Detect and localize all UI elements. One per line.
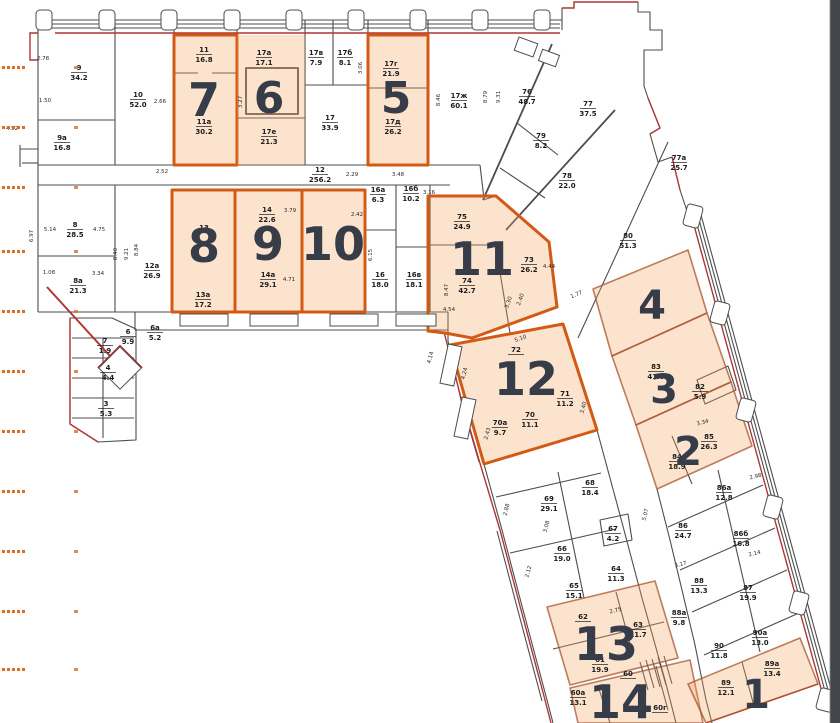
svg-text:24.9: 24.9 (453, 223, 470, 231)
svg-text:86б: 86б (734, 530, 749, 538)
svg-text:17е: 17е (262, 128, 277, 136)
floor-plan-svg: 934.29а16.81052.01116.811а30.217а17.117е… (0, 0, 840, 723)
svg-text:8.46: 8.46 (436, 93, 442, 106)
pilaster-icon (534, 10, 550, 30)
svg-text:79: 79 (536, 132, 546, 140)
svg-text:8.2: 8.2 (535, 142, 548, 150)
unit-number-7[interactable]: 7 (188, 73, 220, 127)
svg-text:17а: 17а (257, 49, 272, 57)
pilaster-icon (286, 10, 302, 30)
svg-text:8.79: 8.79 (483, 90, 489, 103)
svg-text:10: 10 (133, 91, 143, 99)
svg-text:16в: 16в (407, 271, 422, 279)
unit-number-13[interactable]: 13 (574, 617, 638, 671)
svg-text:6а: 6а (150, 324, 160, 332)
svg-text:256.2: 256.2 (309, 176, 331, 184)
svg-text:86а: 86а (717, 484, 732, 492)
svg-text:19.9: 19.9 (739, 594, 756, 602)
svg-text:21.3: 21.3 (69, 287, 86, 295)
svg-text:90: 90 (714, 642, 724, 650)
svg-text:17.1: 17.1 (255, 59, 272, 67)
svg-text:89: 89 (721, 679, 731, 687)
svg-text:14: 14 (262, 206, 272, 214)
svg-text:76: 76 (522, 88, 532, 96)
svg-text:29.1: 29.1 (259, 281, 276, 289)
svg-text:88а: 88а (672, 609, 687, 617)
room-label-60г: 60г (652, 704, 668, 713)
svg-text:12.8: 12.8 (715, 494, 732, 502)
window-recess (180, 314, 228, 326)
unit-number-2[interactable]: 2 (674, 429, 702, 475)
svg-text:5.14: 5.14 (44, 227, 57, 233)
svg-text:6: 6 (126, 328, 131, 336)
svg-text:22.0: 22.0 (558, 182, 575, 190)
svg-text:6.15: 6.15 (368, 248, 374, 261)
floor-plan-page: 934.29а16.81052.01116.811а30.217а17.117е… (0, 0, 840, 723)
svg-text:9.21: 9.21 (124, 248, 130, 260)
pilaster-icon (410, 10, 426, 30)
svg-text:9а: 9а (57, 134, 67, 142)
svg-text:52.0: 52.0 (129, 101, 146, 109)
svg-text:12а: 12а (145, 262, 160, 270)
unit-number-8[interactable]: 8 (188, 219, 220, 273)
pilaster-icon (161, 10, 177, 30)
svg-text:13.1: 13.1 (569, 699, 586, 707)
svg-text:16: 16 (375, 271, 385, 279)
svg-text:4.44: 4.44 (543, 264, 556, 270)
svg-text:3.27: 3.27 (238, 95, 244, 108)
svg-text:15.1: 15.1 (565, 592, 582, 600)
svg-text:9.8: 9.8 (673, 619, 686, 627)
unit-number-14[interactable]: 14 (589, 675, 653, 723)
svg-text:26.3: 26.3 (700, 443, 717, 451)
window-recess (396, 314, 436, 326)
svg-text:3.48: 3.48 (392, 172, 405, 178)
svg-text:37.5: 37.5 (579, 110, 596, 118)
svg-text:4: 4 (106, 364, 111, 372)
svg-text:89а: 89а (765, 660, 780, 668)
unit-number-5[interactable]: 5 (381, 73, 412, 124)
svg-text:90а: 90а (753, 629, 768, 637)
svg-text:80: 80 (623, 232, 633, 240)
unit-number-12[interactable]: 12 (494, 352, 558, 406)
svg-text:13а: 13а (196, 291, 211, 299)
svg-text:33.9: 33.9 (321, 124, 338, 132)
svg-text:7.9: 7.9 (310, 59, 323, 67)
svg-text:17б: 17б (338, 49, 353, 57)
svg-text:24.7: 24.7 (674, 532, 691, 540)
svg-text:18.1: 18.1 (405, 281, 422, 289)
pilaster-icon (472, 10, 488, 30)
svg-text:70: 70 (525, 411, 535, 419)
svg-text:4.75: 4.75 (93, 227, 106, 233)
svg-text:9.9: 9.9 (122, 338, 135, 346)
svg-text:75: 75 (457, 213, 467, 221)
svg-text:78: 78 (562, 172, 572, 180)
svg-text:65: 65 (569, 582, 579, 590)
svg-text:13.0: 13.0 (751, 639, 768, 647)
svg-text:6.97: 6.97 (29, 229, 35, 242)
window-recess (250, 314, 298, 326)
pilaster-icon (36, 10, 52, 30)
svg-text:34.2: 34.2 (70, 74, 87, 82)
unit-number-11[interactable]: 11 (450, 232, 514, 286)
svg-text:11.8: 11.8 (710, 652, 727, 660)
svg-text:77а: 77а (672, 154, 687, 162)
svg-text:8.1: 8.1 (339, 59, 352, 67)
svg-text:21.3: 21.3 (260, 138, 277, 146)
svg-text:70а: 70а (493, 419, 508, 427)
svg-text:67: 67 (608, 525, 618, 533)
svg-text:19.0: 19.0 (553, 555, 570, 563)
svg-text:16б: 16б (404, 185, 419, 193)
unit-number-4[interactable]: 4 (638, 283, 666, 329)
svg-text:4.4: 4.4 (102, 374, 115, 382)
svg-text:5.2: 5.2 (149, 334, 162, 342)
svg-text:26.2: 26.2 (384, 128, 401, 136)
svg-text:11: 11 (199, 46, 209, 54)
svg-text:8.84: 8.84 (134, 243, 140, 256)
svg-text:7: 7 (103, 337, 108, 345)
svg-text:16.8: 16.8 (53, 144, 70, 152)
svg-text:17.2: 17.2 (194, 301, 211, 309)
svg-text:64: 64 (611, 565, 621, 573)
svg-text:5.9: 5.9 (694, 393, 707, 401)
svg-text:25.7: 25.7 (670, 164, 687, 172)
svg-text:4.71: 4.71 (283, 277, 295, 283)
svg-text:16а: 16а (371, 186, 386, 194)
window-recess (330, 314, 378, 326)
svg-text:8.40: 8.40 (113, 247, 119, 260)
svg-text:60а: 60а (571, 689, 586, 697)
svg-text:4.2: 4.2 (607, 535, 620, 543)
pilaster-icon (99, 10, 115, 30)
svg-text:60.1: 60.1 (450, 102, 467, 110)
unit-number-10[interactable]: 10 (301, 217, 365, 271)
svg-text:18.0: 18.0 (371, 281, 388, 289)
svg-text:4.54: 4.54 (443, 307, 456, 313)
svg-text:87: 87 (743, 584, 753, 592)
svg-text:3.34: 3.34 (92, 271, 105, 277)
svg-text:29.1: 29.1 (540, 505, 557, 513)
svg-text:14а: 14а (261, 271, 276, 279)
svg-text:88: 88 (694, 577, 704, 585)
svg-text:10.2: 10.2 (402, 195, 419, 203)
svg-text:1.08: 1.08 (43, 270, 56, 276)
svg-text:12.1: 12.1 (717, 689, 734, 697)
svg-text:66: 66 (557, 545, 567, 553)
svg-text:9.7: 9.7 (494, 429, 507, 437)
svg-text:2.29: 2.29 (346, 172, 359, 178)
svg-text:73: 73 (524, 256, 534, 264)
svg-text:12: 12 (315, 166, 325, 174)
svg-text:77: 77 (583, 100, 593, 108)
svg-text:2.66: 2.66 (154, 99, 167, 105)
svg-text:17ж: 17ж (451, 92, 468, 100)
svg-text:3.16: 3.16 (423, 190, 436, 196)
svg-text:82: 82 (695, 383, 705, 391)
svg-text:17в: 17в (309, 49, 324, 57)
svg-text:8: 8 (73, 221, 78, 229)
svg-text:2.78: 2.78 (37, 56, 50, 62)
svg-text:48.7: 48.7 (518, 98, 535, 106)
svg-text:11.2: 11.2 (556, 400, 573, 408)
svg-text:51.3: 51.3 (619, 242, 636, 250)
svg-text:60г: 60г (653, 704, 667, 712)
svg-text:1.9: 1.9 (99, 347, 112, 355)
svg-text:16.8: 16.8 (732, 540, 749, 548)
svg-text:68: 68 (585, 479, 595, 487)
pilaster-icon (348, 10, 364, 30)
svg-text:11.3: 11.3 (607, 575, 624, 583)
svg-text:6.3: 6.3 (372, 196, 385, 204)
svg-text:85: 85 (704, 433, 714, 441)
svg-text:26.9: 26.9 (143, 272, 160, 280)
svg-text:2.52: 2.52 (156, 169, 168, 175)
svg-text:26.2: 26.2 (520, 266, 537, 274)
svg-text:13.3: 13.3 (690, 587, 707, 595)
svg-text:28.5: 28.5 (66, 231, 83, 239)
svg-text:30.2: 30.2 (195, 128, 212, 136)
svg-text:9.31: 9.31 (496, 91, 502, 103)
svg-text:86: 86 (678, 522, 688, 530)
svg-text:3.06: 3.06 (358, 61, 364, 74)
unit-number-6[interactable]: 6 (254, 73, 285, 124)
viewer-edge-strip (830, 0, 840, 723)
svg-text:17: 17 (325, 114, 335, 122)
svg-text:3: 3 (104, 400, 109, 408)
svg-text:8а: 8а (73, 277, 83, 285)
svg-text:18.4: 18.4 (581, 489, 598, 497)
svg-text:17г: 17г (384, 60, 398, 68)
unit-number-9[interactable]: 9 (252, 217, 284, 271)
pilaster-icon (224, 10, 240, 30)
svg-text:69: 69 (544, 495, 554, 503)
svg-text:11.1: 11.1 (521, 421, 538, 429)
svg-text:5.3: 5.3 (100, 410, 113, 418)
svg-text:3.79: 3.79 (284, 208, 297, 214)
unit-number-1[interactable]: 1 (742, 672, 770, 718)
svg-text:1.50: 1.50 (39, 98, 52, 104)
svg-text:16.8: 16.8 (195, 56, 212, 64)
unit-number-3[interactable]: 3 (650, 367, 678, 413)
svg-text:42.7: 42.7 (458, 287, 475, 295)
svg-text:71: 71 (560, 390, 570, 398)
